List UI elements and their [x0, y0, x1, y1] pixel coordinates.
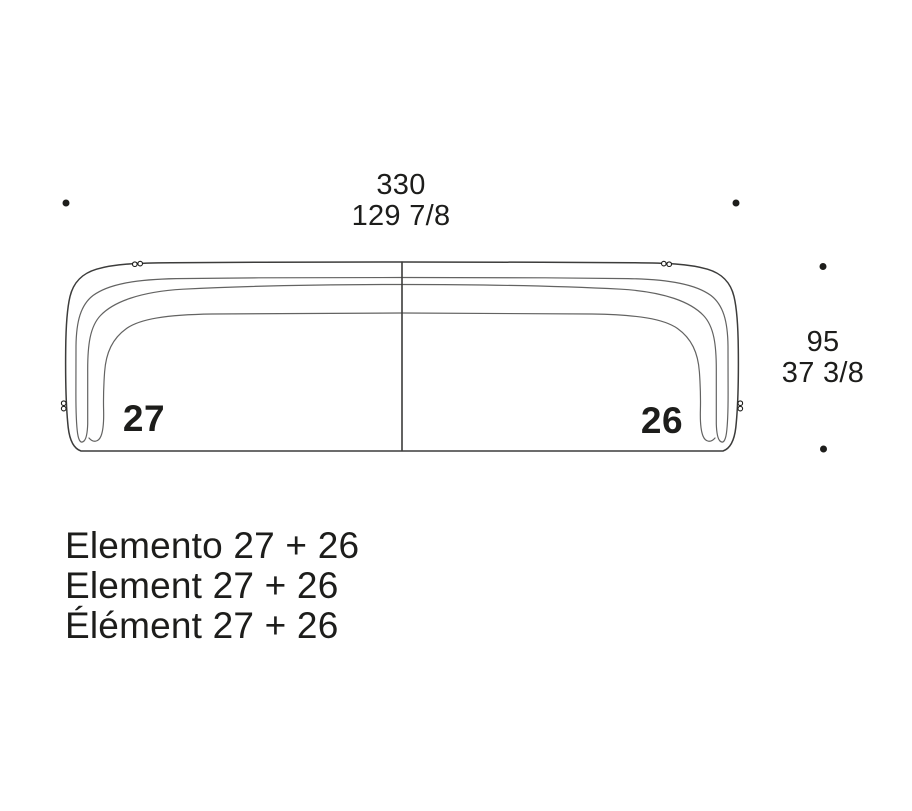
depth-dimension-cm: 95 [782, 327, 864, 358]
width-dimension-cm: 330 [352, 170, 451, 201]
caption-french: Élément 27 + 26 [65, 606, 359, 646]
caption-block: Elemento 27 + 26 Element 27 + 26 Élément… [65, 526, 359, 646]
dimension-reference-dot [63, 200, 828, 453]
caption-english: Element 27 + 26 [65, 566, 359, 606]
width-dimension: 330 129 7/8 [352, 170, 451, 232]
width-dimension-inches: 129 7/8 [352, 201, 451, 232]
element-number-right: 26 [641, 400, 683, 442]
depth-dimension: 95 37 3/8 [782, 327, 864, 389]
depth-dimension-inches: 37 3/8 [782, 358, 864, 389]
element-number-left: 27 [123, 398, 165, 440]
spec-sheet: 330 129 7/8 95 37 3/8 27 26 Elemento 27 … [0, 0, 912, 811]
caption-italian: Elemento 27 + 26 [65, 526, 359, 566]
